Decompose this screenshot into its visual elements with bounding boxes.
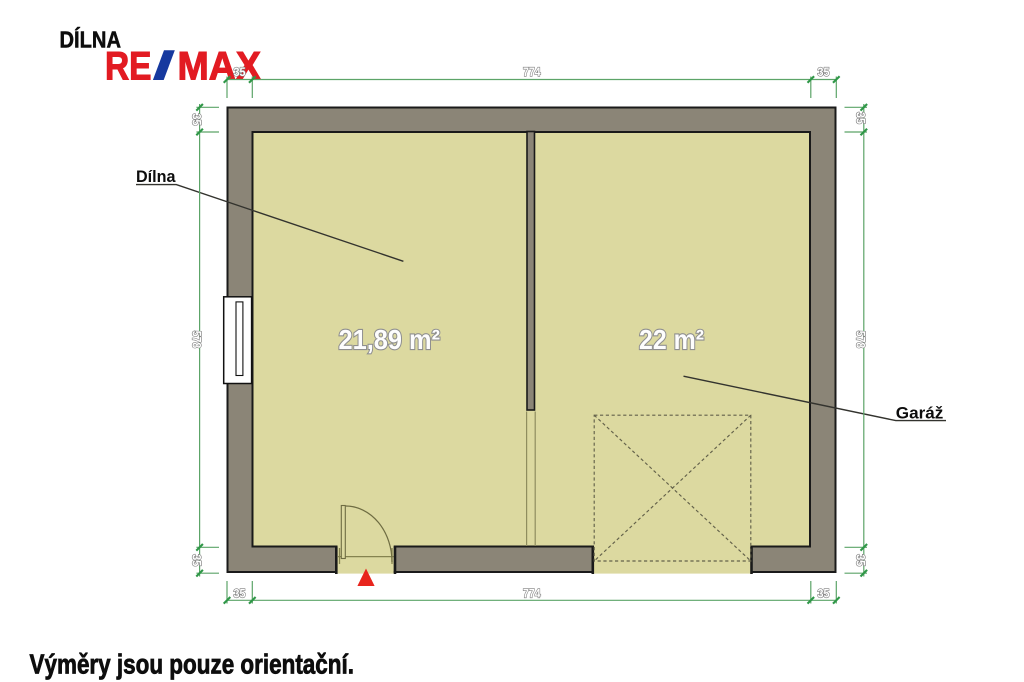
svg-text:35: 35	[853, 112, 867, 124]
svg-text:Výměry jsou pouze orientační.: Výměry jsou pouze orientační.	[30, 649, 355, 680]
svg-text:774: 774	[523, 587, 541, 601]
svg-text:RE: RE	[105, 44, 152, 88]
svg-text:MAX: MAX	[178, 44, 262, 88]
svg-text:35: 35	[853, 554, 867, 566]
svg-text:578: 578	[853, 331, 867, 349]
svg-text:Dílna: Dílna	[136, 167, 176, 186]
svg-text:35: 35	[818, 65, 830, 79]
svg-text:35: 35	[818, 587, 830, 601]
svg-text:21,89 m²: 21,89 m²	[339, 324, 441, 355]
svg-text:22 m²: 22 m²	[639, 324, 704, 355]
svg-text:774: 774	[523, 65, 541, 79]
svg-text:35: 35	[189, 114, 203, 126]
svg-text:35: 35	[234, 587, 246, 601]
svg-text:Garáž: Garáž	[896, 404, 944, 423]
svg-text:35: 35	[189, 554, 203, 566]
svg-text:35: 35	[234, 65, 246, 79]
svg-text:578: 578	[189, 331, 203, 349]
